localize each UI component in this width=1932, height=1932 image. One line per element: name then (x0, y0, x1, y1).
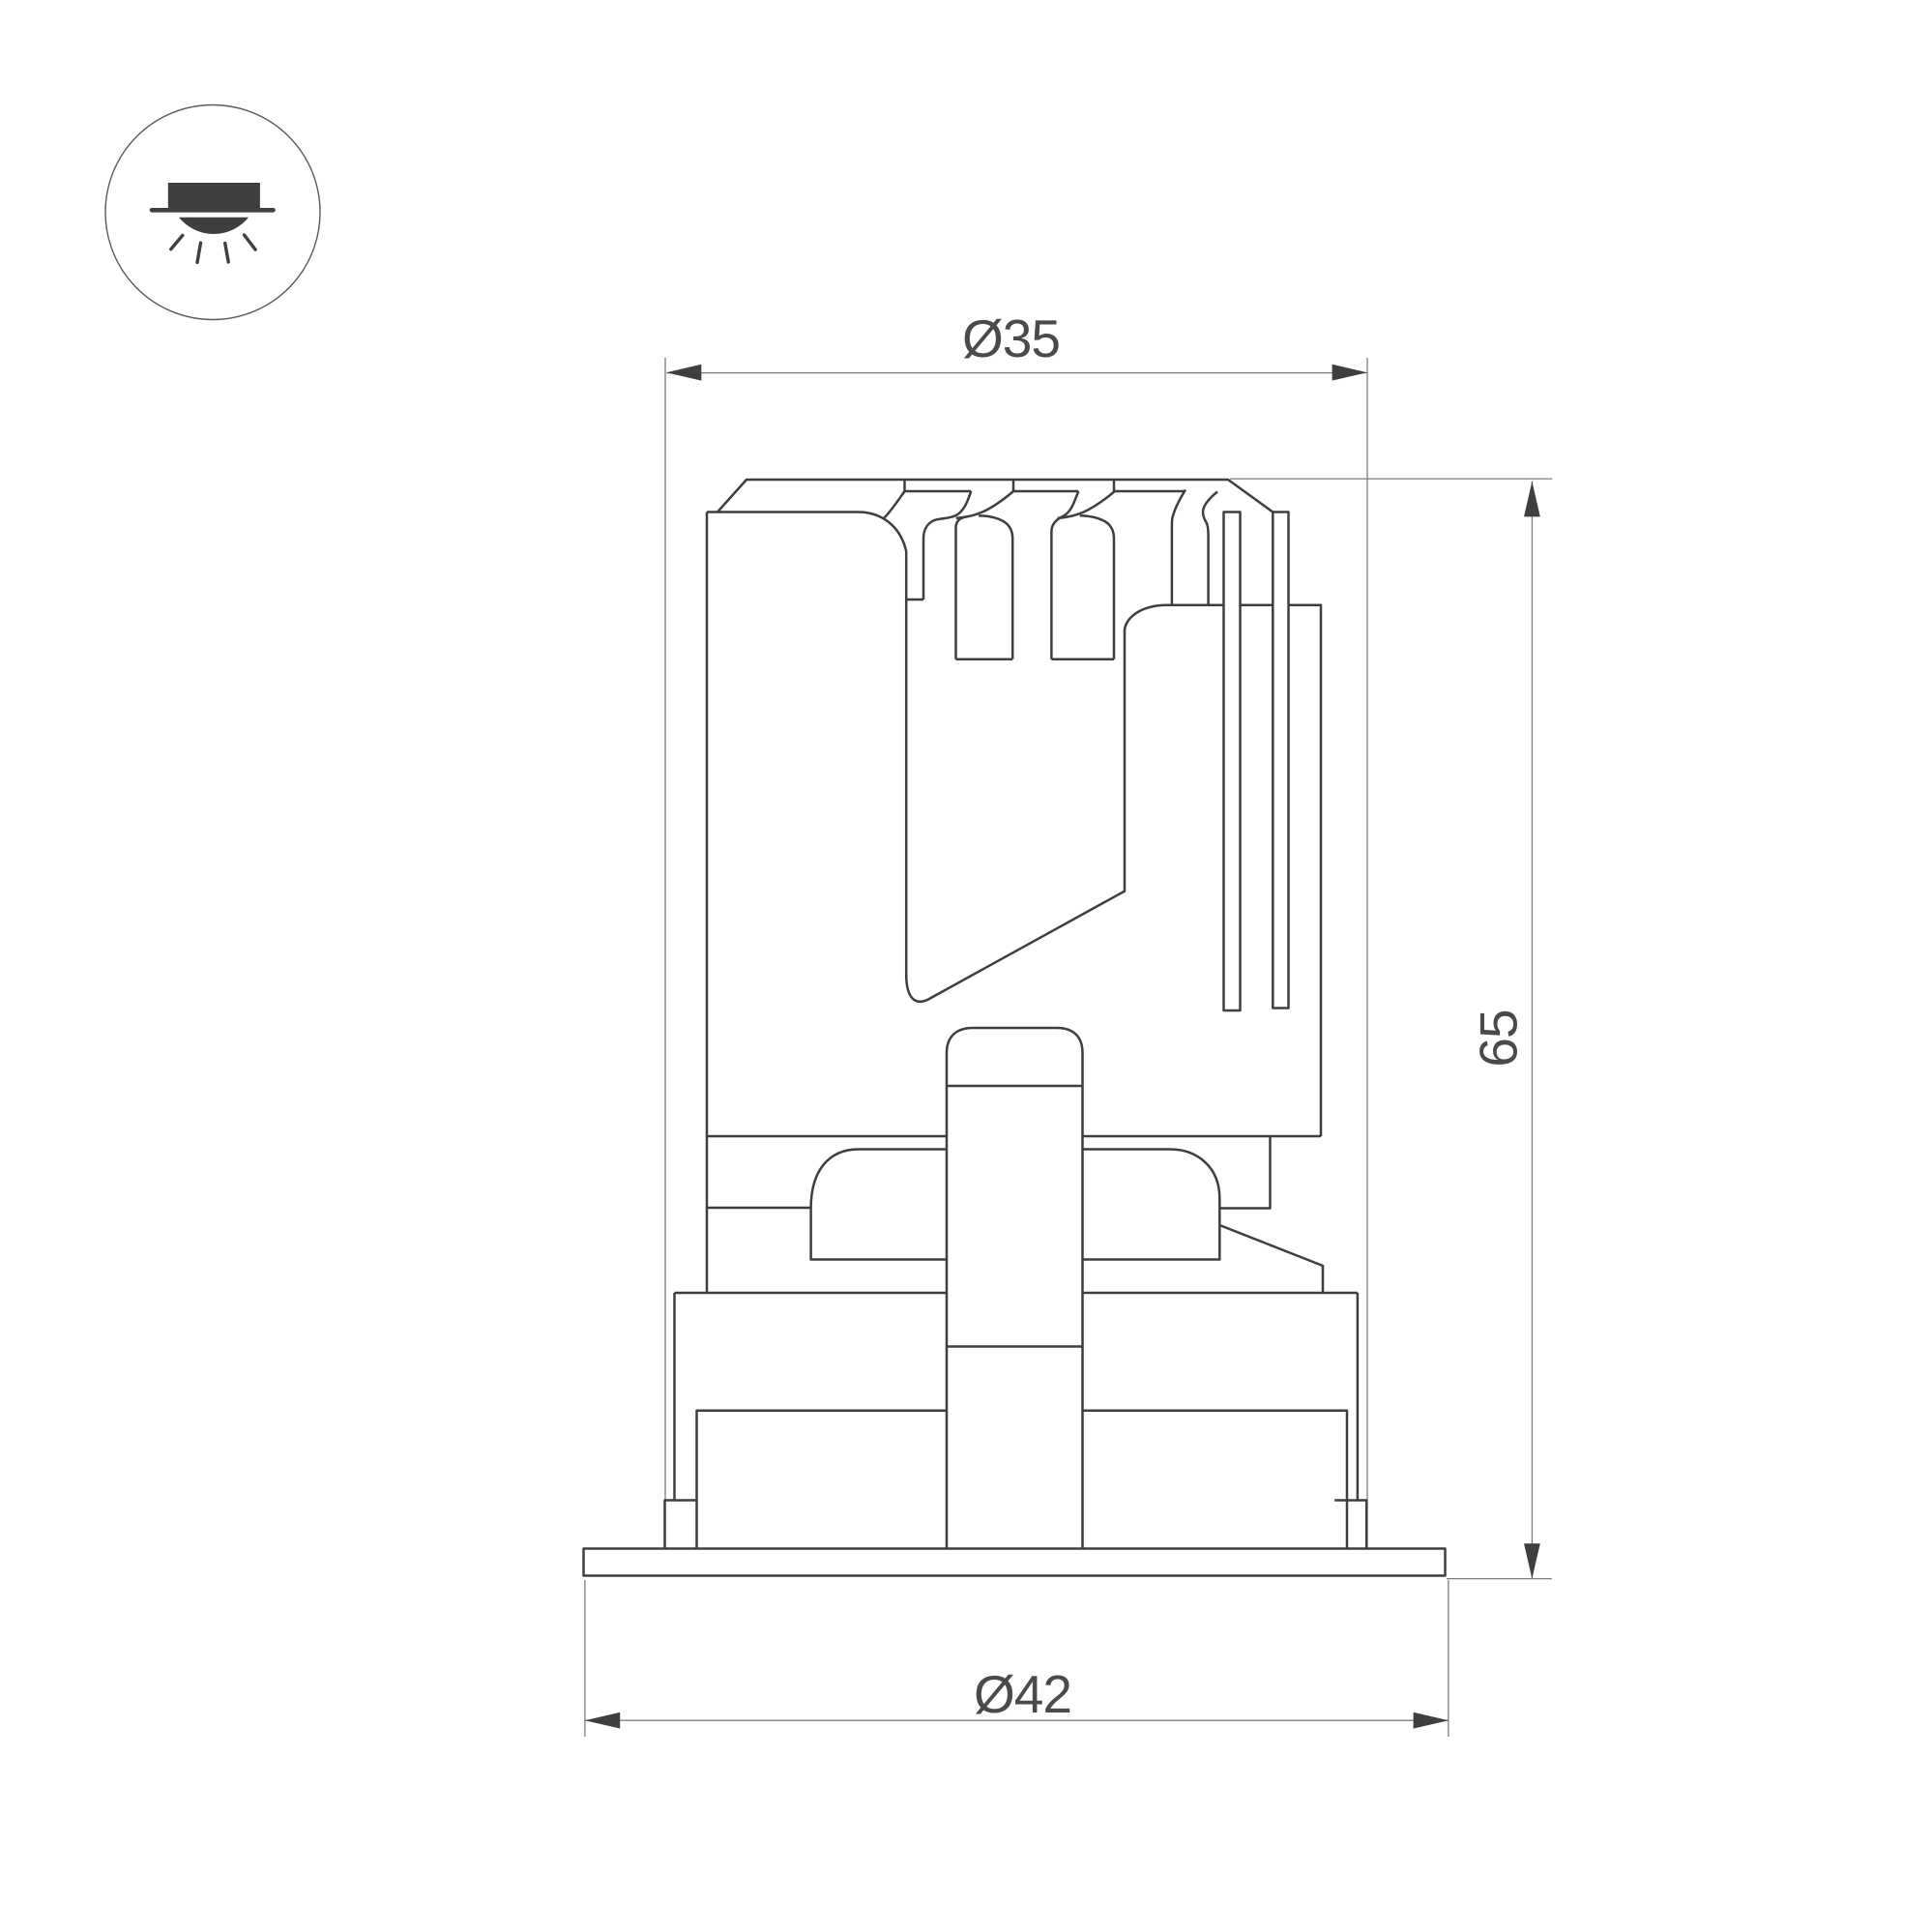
svg-text:Ø35: Ø35 (962, 308, 1060, 368)
svg-text:Ø42: Ø42 (974, 1664, 1071, 1724)
svg-text:65: 65 (1469, 1010, 1529, 1067)
